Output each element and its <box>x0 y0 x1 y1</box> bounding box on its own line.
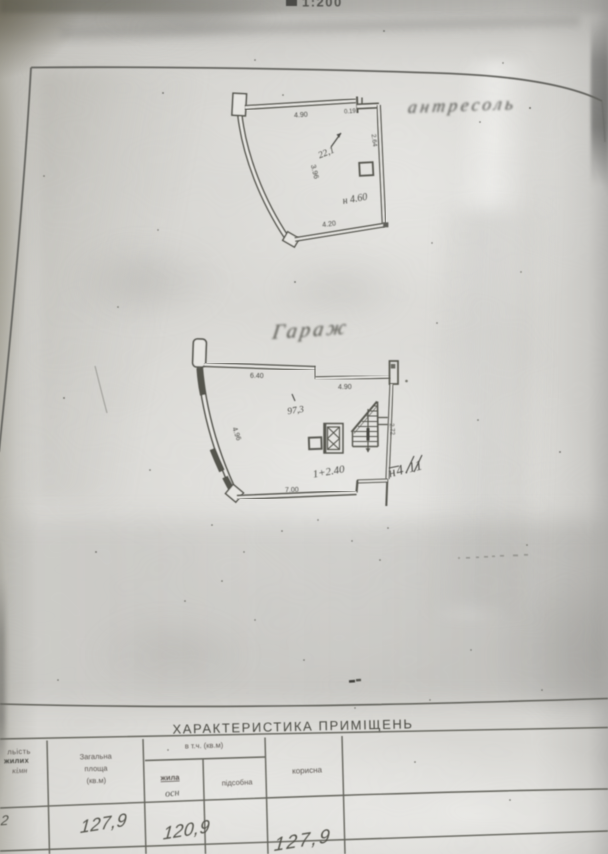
svg-text:127,9: 127,9 <box>273 826 333 854</box>
svg-text:22,1: 22,1 <box>317 146 336 161</box>
svg-text:3.96: 3.96 <box>309 163 321 179</box>
svg-text:Загальна: Загальна <box>80 752 113 762</box>
svg-text:жила: жила <box>159 773 180 783</box>
svg-text:7.00: 7.00 <box>285 487 299 494</box>
svg-text:4.90: 4.90 <box>294 112 308 120</box>
svg-text:6.40: 6.40 <box>250 373 264 380</box>
svg-text:корисна: корисна <box>292 765 323 775</box>
svg-text:2: 2 <box>0 812 9 829</box>
svg-text:Гараж: Гараж <box>270 315 351 344</box>
svg-text:1:200: 1:200 <box>302 0 343 10</box>
svg-text:4.96: 4.96 <box>230 426 241 441</box>
svg-text:127,9: 127,9 <box>79 808 128 837</box>
svg-text:2.64: 2.64 <box>370 134 379 148</box>
svg-text:4.90: 4.90 <box>338 384 352 391</box>
svg-text:антресоль: антресоль <box>407 93 518 117</box>
svg-text:2.72: 2.72 <box>388 423 395 436</box>
svg-text:(кв.м): (кв.м) <box>86 776 106 786</box>
svg-text:120,9: 120,9 <box>162 815 211 844</box>
svg-text:0.19: 0.19 <box>344 109 357 116</box>
svg-text:площа: площа <box>84 764 108 774</box>
svg-text:кімн: кімн <box>12 766 27 775</box>
svg-text:в т.ч. (кв.м): в т.ч. (кв.м) <box>185 740 224 750</box>
svg-text:осн: осн <box>165 787 181 799</box>
svg-text:н 4.60: н 4.60 <box>342 192 368 207</box>
svg-text:97,3: 97,3 <box>287 405 305 417</box>
svg-text:1+2.40: 1+2.40 <box>312 463 346 480</box>
svg-text:жилих: жилих <box>3 756 30 766</box>
svg-text:4.20: 4.20 <box>322 220 336 229</box>
svg-text:підсобна: підсобна <box>222 777 254 787</box>
